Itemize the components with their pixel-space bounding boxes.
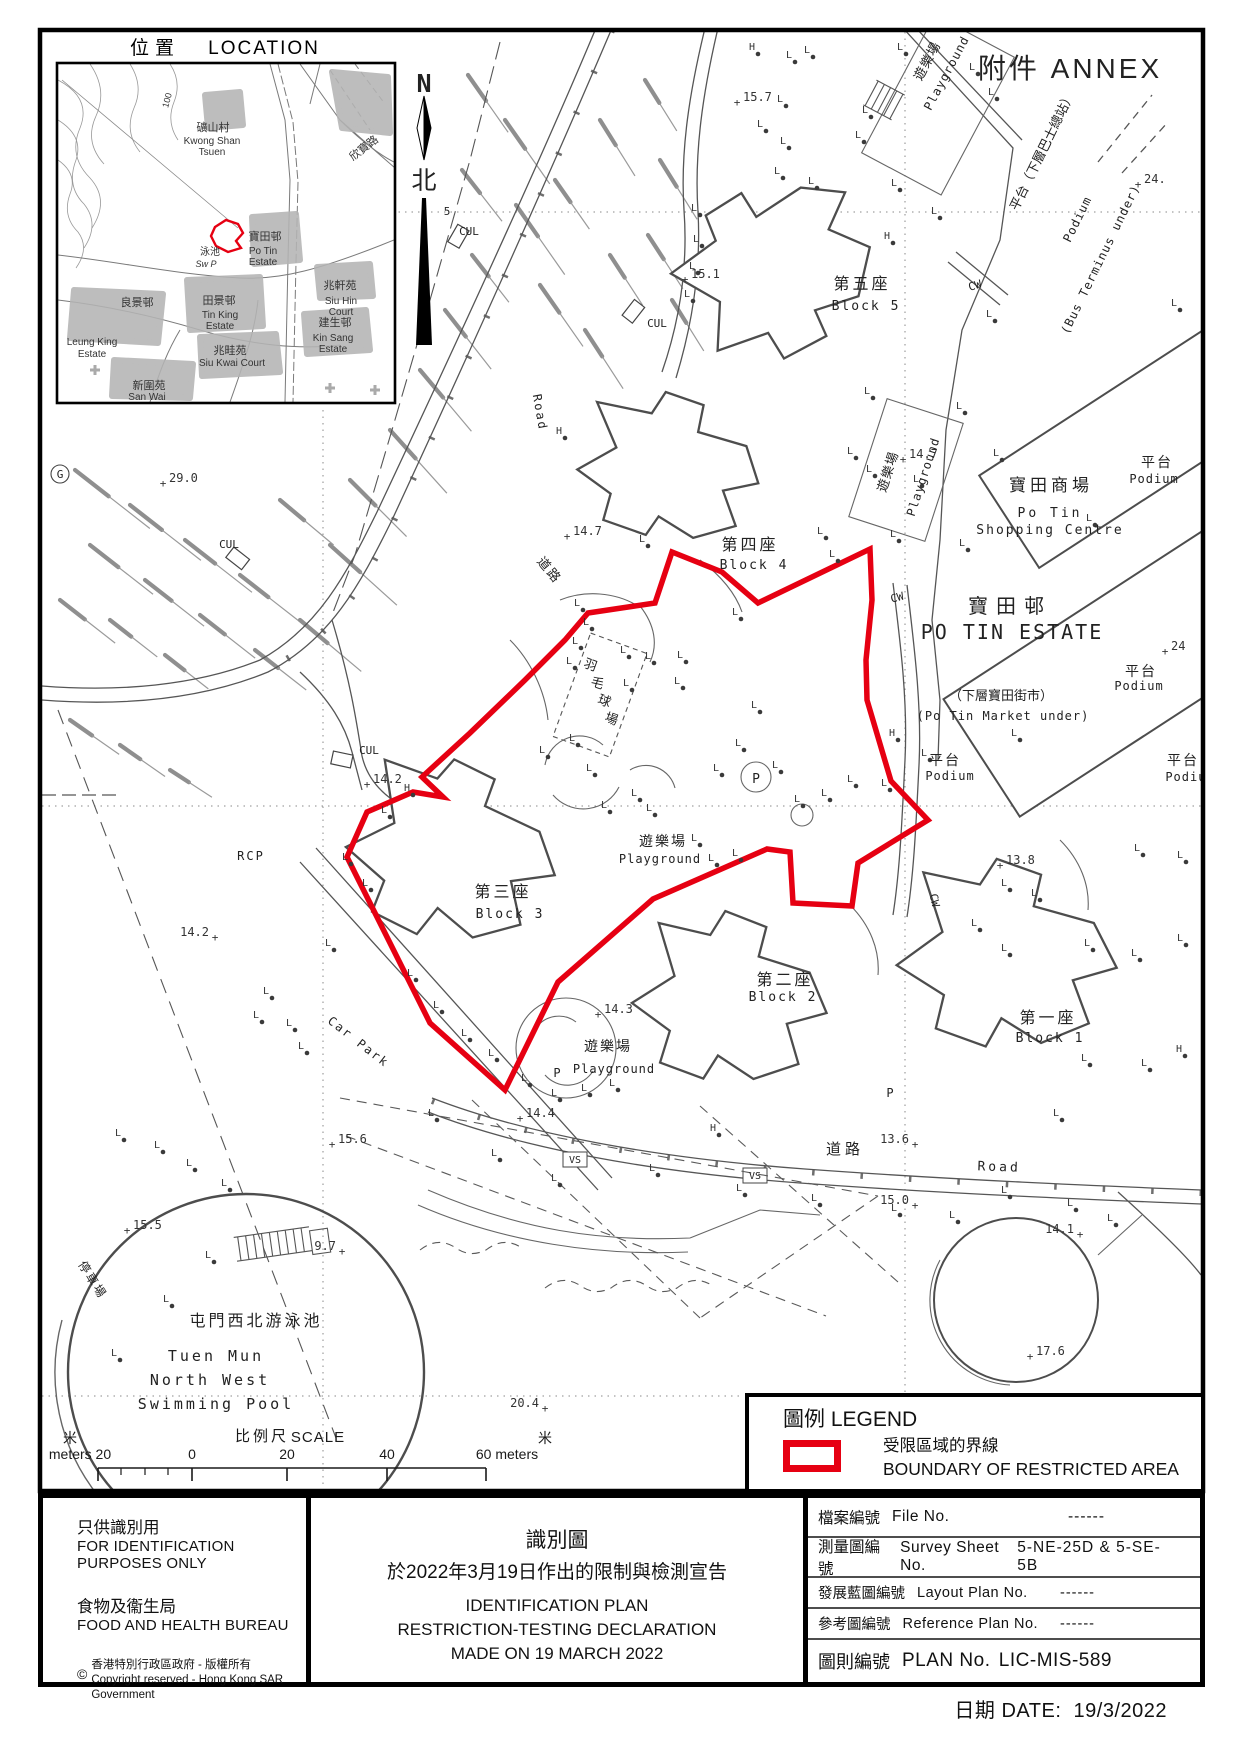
- slope-streak: [170, 770, 212, 797]
- lamp-post-dot: [579, 646, 584, 651]
- slope-streak: [585, 330, 623, 389]
- lamp-post-symbol: L: [1001, 1185, 1007, 1196]
- spot-height-value: 14.4: [526, 1106, 555, 1120]
- map-label: Block 1: [1016, 1031, 1085, 1046]
- lamp-post-symbol: L: [342, 852, 348, 863]
- map-label: SCALE: [291, 1429, 345, 1446]
- map-label: Podium: [1114, 679, 1163, 693]
- map-label: Kin Sang: [313, 333, 354, 344]
- map-label: Swimming Pool: [138, 1395, 294, 1413]
- lamp-post-dot: [700, 244, 705, 249]
- lamp-post-symbol: L: [1081, 1053, 1087, 1064]
- map-label: Tin King: [202, 310, 238, 321]
- lamp-post-symbol: L: [1001, 878, 1007, 889]
- lamp-post-dot: [369, 888, 374, 893]
- lamp-post-dot: [1018, 738, 1023, 743]
- map-label: Playground: [573, 1062, 655, 1076]
- map-label: Block 4: [720, 558, 789, 573]
- plan-line3-en: MADE ON 19 MARCH 2022: [311, 1642, 803, 1666]
- lamp-post-symbol: L: [1177, 850, 1183, 861]
- lamp-post-dot: [495, 1058, 500, 1063]
- table-row: 圖則編號 PLAN No. LIC-MIS-589: [808, 1640, 1200, 1682]
- slope-streak: [645, 80, 677, 131]
- map-label: Block 3: [476, 907, 545, 922]
- spot-height-cross: +: [542, 1402, 549, 1415]
- lamp-post-dot: [1184, 860, 1189, 865]
- lamp-post-dot: [787, 146, 792, 151]
- table-row: 參考圖編號 Reference Plan No. ------: [808, 1609, 1200, 1640]
- spot-height-value: 24: [1171, 639, 1185, 653]
- map-label: Road: [530, 393, 550, 432]
- spot-height-value: 15.5: [133, 1218, 162, 1232]
- scale-bar: [98, 1468, 486, 1481]
- h-marker-dot: [411, 793, 416, 798]
- spot-height-value: 20.4: [510, 1396, 539, 1410]
- lamp-post-dot: [558, 1098, 563, 1103]
- map-label: PO TIN ESTATE: [921, 620, 1104, 644]
- spot-height-cross: +: [682, 273, 689, 286]
- spot-height-value: 17.6: [1036, 1344, 1065, 1358]
- lamp-post-dot: [212, 1260, 217, 1265]
- lamp-post-dot: [742, 748, 747, 753]
- lamp-post-dot: [260, 1020, 265, 1025]
- lamp-post-symbol: L: [866, 464, 872, 475]
- map-label: Shopping Centre: [976, 523, 1123, 538]
- h-marker-symbol: H: [889, 728, 895, 739]
- lamp-post-dot: [720, 773, 725, 778]
- h-marker-symbol: H: [884, 231, 890, 242]
- spot-height-cross: +: [517, 1112, 524, 1125]
- lamp-post-dot: [440, 1010, 445, 1015]
- h-marker-symbol: H: [749, 42, 755, 53]
- lamp-post-dot: [897, 539, 902, 544]
- map-label: 良景邨: [121, 295, 154, 309]
- lamp-post-dot: [118, 1358, 123, 1363]
- lamp-post-dot: [715, 863, 720, 868]
- lamp-post-dot: [349, 862, 354, 867]
- map-label: 第五座: [833, 275, 890, 293]
- lamp-post-symbol: L: [855, 130, 861, 141]
- lamp-post-symbol: L: [407, 968, 413, 979]
- lamp-post-symbol: L: [794, 794, 800, 805]
- lamp-post-dot: [528, 1083, 533, 1088]
- map-label: CW: [889, 590, 906, 606]
- lamp-post-symbol: L: [808, 176, 814, 187]
- lamp-post-dot: [873, 474, 878, 479]
- lamp-post-dot: [1038, 898, 1043, 903]
- lamp-post-symbol: L: [757, 119, 763, 130]
- lamp-post-dot: [588, 1093, 593, 1098]
- lamp-post-dot: [653, 813, 658, 818]
- map-label: 道路: [826, 1141, 864, 1158]
- table-row: 檔案編號 File No. ------: [808, 1498, 1200, 1538]
- lamp-post-symbol: L: [969, 62, 975, 73]
- map-label: 遊樂場: [639, 833, 687, 849]
- map-label: Block 5: [832, 299, 901, 314]
- block-1-footprint: [871, 833, 1139, 1082]
- spot-height-cross: +: [364, 778, 371, 791]
- h-marker-dot: [1183, 1054, 1188, 1059]
- slope-streak: [555, 180, 589, 229]
- lamp-post-symbol: L: [566, 656, 572, 667]
- map-label: Podium: [1129, 472, 1178, 486]
- spot-height-value: 14.7: [573, 524, 602, 538]
- lamp-post-symbol: L: [325, 938, 331, 949]
- h-marker-symbol: H: [710, 1123, 716, 1134]
- lamp-post-symbol: L: [286, 1018, 292, 1029]
- lamp-post-symbol: L: [569, 733, 575, 744]
- lamp-post-dot: [966, 548, 971, 553]
- identification-note-block: 只供識別用 FOR IDENTIFICATION PURPOSES ONLY 食…: [43, 1498, 311, 1682]
- lamp-post-symbol: L: [693, 234, 699, 245]
- lamp-post-dot: [193, 1168, 198, 1173]
- lamp-post-symbol: L: [1031, 888, 1037, 899]
- slope-streak: [672, 300, 704, 351]
- spot-height-value: 15.6: [338, 1132, 367, 1146]
- spot-height-value: 13.6: [880, 1132, 909, 1146]
- lamp-post-dot: [1091, 948, 1096, 953]
- table-row: 發展藍圖編號 Layout Plan No. ------: [808, 1578, 1200, 1609]
- map-label: 建生邨: [319, 315, 352, 329]
- map-label: P: [553, 1066, 560, 1080]
- map-label: 礦山村: [197, 120, 230, 134]
- slope-streak: [648, 235, 683, 289]
- lamp-post-symbol: L: [1084, 938, 1090, 949]
- north-letter: N: [416, 69, 431, 98]
- map-label: 米: [63, 1430, 77, 1446]
- lamp-post-dot: [593, 773, 598, 778]
- restricted-boundary-swatch: [783, 1440, 841, 1472]
- lamp-post-dot: [122, 1138, 127, 1143]
- map-label: Sw P: [195, 259, 216, 269]
- map-label: 新圍苑: [133, 378, 166, 392]
- map-label: 0: [188, 1446, 196, 1462]
- spot-height-cross: +: [1162, 645, 1169, 658]
- map-label: 寶田邨: [968, 595, 1052, 618]
- map-label: Estate: [319, 344, 348, 355]
- map-label: CW: [967, 277, 984, 294]
- map-label: 40: [379, 1446, 395, 1462]
- slope-streak: [600, 120, 635, 176]
- slope-streak: [70, 720, 119, 754]
- spot-height-cross: +: [997, 859, 1004, 872]
- slope-streak: [110, 620, 157, 657]
- lamp-post-symbol: L: [772, 760, 778, 771]
- lamp-post-dot: [681, 686, 686, 691]
- map-label: 20: [279, 1446, 295, 1462]
- lamp-post-symbol: L: [572, 636, 578, 647]
- lamp-post-dot: [638, 798, 643, 803]
- lamp-post-symbol: L: [1053, 1108, 1059, 1119]
- plan-line2-en: RESTRICTION-TESTING DECLARATION: [311, 1618, 803, 1642]
- lamp-post-dot: [1000, 458, 1005, 463]
- copyright-icon: ©: [77, 1666, 87, 1682]
- lamp-post-symbol: L: [708, 853, 714, 864]
- lamp-post-symbol: L: [186, 1158, 192, 1169]
- lamp-post-symbol: L: [461, 1028, 467, 1039]
- lamp-post-dot: [581, 608, 586, 613]
- map-label: 寶田邨: [249, 229, 282, 243]
- identification-plan-page: LLLLLLLLLLLLLLLLLLLLLLLLLLLLLLLLLLLLLLLL…: [0, 0, 1241, 1754]
- lamp-post-symbol: L: [154, 1140, 160, 1151]
- slope-streak: [610, 255, 643, 305]
- lamp-post-symbol: L: [862, 105, 868, 116]
- map-label: 平台: [1125, 663, 1157, 679]
- lamp-post-dot: [1008, 888, 1013, 893]
- lamp-post-dot: [793, 60, 798, 65]
- location-inset-map: 礦山村Kwong ShanTsuen欣寶路100寶田邨Po TinEstate泳…: [43, 37, 395, 403]
- lamp-post-symbol: L: [713, 763, 719, 774]
- lamp-post-symbol: L: [956, 401, 962, 412]
- map-label: Podium: [1060, 194, 1094, 245]
- lamp-post-symbol: L: [993, 448, 999, 459]
- map-label: Playground: [619, 852, 701, 866]
- lamp-post-symbol: L: [774, 166, 780, 177]
- spot-height-cross: +: [912, 1138, 919, 1151]
- lamp-post-symbol: L: [988, 87, 994, 98]
- lamp-post-dot: [332, 948, 337, 953]
- note-zh: 只供識別用: [77, 1514, 306, 1538]
- lamp-post-dot: [228, 1188, 233, 1193]
- legend-item-label: 受限區域的界線 BOUNDARY OF RESTRICTED AREA: [883, 1436, 1179, 1482]
- map-label: Podium: [925, 769, 974, 783]
- lamp-post-dot: [435, 1118, 440, 1123]
- lamp-post-dot: [388, 815, 393, 820]
- map-label: G: [57, 468, 64, 481]
- map-label: meters 20: [49, 1446, 111, 1462]
- map-label: 第二座: [756, 971, 813, 989]
- map-label: 米: [538, 1430, 552, 1446]
- map-label: CUL: [459, 225, 479, 238]
- map-label: Tsuen: [199, 147, 226, 158]
- map-label: Car Park: [325, 1014, 392, 1070]
- lamp-post-dot: [956, 1220, 961, 1225]
- legend-box: 圖例 LEGEND 受限區域的界線 BOUNDARY OF RESTRICTED…: [745, 1393, 1205, 1493]
- lamp-post-symbol: L: [847, 774, 853, 785]
- lamp-post-dot: [1178, 308, 1183, 313]
- lamp-post-dot: [811, 55, 816, 60]
- lamp-post-symbol: L: [732, 607, 738, 618]
- lamp-post-symbol: L: [691, 833, 697, 844]
- lamp-post-dot: [869, 115, 874, 120]
- scale-bar-labels: 米meters 20比例尺SCALE0204060 meters米: [49, 1428, 552, 1462]
- lamp-post-dot: [414, 978, 419, 983]
- north-arrow: [416, 96, 432, 345]
- spot-height-value: 13.8: [1006, 853, 1035, 867]
- map-label: CUL: [219, 538, 239, 551]
- lamp-post-symbol: L: [263, 986, 269, 997]
- map-label: Estate: [249, 257, 278, 268]
- lamp-post-symbol: L: [1134, 843, 1140, 854]
- map-label: Siu Hin: [325, 296, 357, 307]
- map-label: Estate: [78, 349, 107, 360]
- slope-streak: [468, 75, 508, 132]
- spot-height-cross: +: [912, 1199, 919, 1212]
- lamp-post-dot: [904, 52, 909, 57]
- map-label: 場: [603, 709, 620, 728]
- map-label: 遊樂場: [874, 449, 901, 494]
- lamp-post-symbol: L: [921, 748, 927, 759]
- lamp-post-dot: [1008, 1195, 1013, 1200]
- date-line: 日期 DATE: 19/3/2022: [954, 1694, 1167, 1723]
- lamp-post-symbol: L: [777, 94, 783, 105]
- lamp-post-dot: [815, 186, 820, 191]
- lamp-post-dot: [828, 798, 833, 803]
- lamp-post-dot: [630, 688, 635, 693]
- lamp-post-dot: [779, 770, 784, 775]
- map-label: 60 meters: [476, 1446, 538, 1462]
- map-label: 兆軒苑: [324, 279, 357, 292]
- lamp-post-symbol: L: [1131, 948, 1137, 959]
- map-label: 5: [444, 205, 451, 218]
- lamp-post-symbol: L: [1141, 1058, 1147, 1069]
- h-marker-dot: [717, 1133, 722, 1138]
- slope-streak: [420, 370, 471, 431]
- lamp-post-symbol: L: [581, 1083, 587, 1094]
- lamp-post-symbol: L: [786, 50, 792, 61]
- lamp-post-dot: [652, 661, 657, 666]
- map-label: Road: [977, 1159, 1021, 1176]
- map-label: 兆畦苑: [214, 344, 247, 357]
- lamp-post-dot: [627, 655, 632, 660]
- h-marker-dot: [896, 738, 901, 743]
- north-char: 北: [411, 167, 436, 195]
- spot-height-value: 14.2: [373, 772, 402, 786]
- copyright-note: © 香港特別行政區政府 - 版權所有 Copyright reserved - …: [77, 1658, 306, 1703]
- map-label: CUL: [359, 744, 379, 757]
- spot-height-value: 29.0: [169, 471, 198, 485]
- map-label: Kwong Shan: [184, 136, 241, 147]
- slope-streak: [75, 470, 150, 528]
- map-label: 第一座: [1019, 1009, 1076, 1027]
- map-label: Po Tin: [249, 246, 277, 257]
- lamp-post-symbol: L: [115, 1128, 121, 1139]
- slope-streak: [145, 580, 204, 626]
- lamp-post-symbol: L: [491, 1148, 497, 1159]
- map-label: 第四座: [721, 536, 778, 554]
- map-label: 平台: [1167, 752, 1199, 768]
- spot-height-value: 15.0: [880, 1193, 909, 1207]
- h-marker-dot: [756, 52, 761, 57]
- lamp-post-symbol: L: [521, 1073, 527, 1084]
- lamp-post-dot: [898, 1213, 903, 1218]
- lamp-post-symbol: L: [539, 745, 545, 756]
- lamp-post-dot: [1138, 958, 1143, 963]
- lamp-post-dot: [698, 843, 703, 848]
- lamp-post-symbol: L: [362, 878, 368, 889]
- lamp-post-symbol: L: [677, 650, 683, 661]
- lamp-post-dot: [824, 536, 829, 541]
- map-label: 毛: [589, 673, 606, 692]
- lamp-post-symbol: L: [691, 203, 697, 214]
- map-label: (Po Tin Market under): [917, 709, 1090, 723]
- lamp-post-dot: [862, 140, 867, 145]
- lamp-post-dot: [781, 176, 786, 181]
- lamp-post-symbol: L: [751, 700, 757, 711]
- h-marker-dot: [563, 436, 568, 441]
- lamp-post-symbol: L: [971, 918, 977, 929]
- lamp-post-symbol: L: [163, 1294, 169, 1305]
- lamp-post-dot: [558, 1183, 563, 1188]
- lamp-post-dot: [995, 97, 1000, 102]
- map-label: (Bus Terminus under): [1058, 182, 1143, 336]
- lamp-post-symbol: L: [381, 805, 387, 816]
- spot-height-cross: +: [160, 477, 167, 490]
- lamp-post-symbol: L: [583, 617, 589, 628]
- title-block-section: 只供識別用 FOR IDENTIFICATION PURPOSES ONLY 食…: [38, 1493, 1205, 1687]
- map-label: 比例尺: [235, 1428, 289, 1445]
- lamp-post-symbol: L: [864, 386, 870, 397]
- lamp-post-dot: [684, 660, 689, 665]
- spot-height-value: 14.1: [1045, 1222, 1074, 1236]
- lamp-post-dot: [1141, 853, 1146, 858]
- lamp-post-symbol: L: [847, 446, 853, 457]
- slope-streak: [280, 500, 334, 545]
- slope-streak: [60, 600, 115, 643]
- lamp-post-symbol: L: [639, 534, 645, 545]
- slope-streak: [540, 285, 583, 346]
- map-label: （下層寶田街市）: [949, 688, 1053, 703]
- lamp-post-dot: [161, 1150, 166, 1155]
- h-marker-symbol: H: [404, 783, 410, 794]
- h-marker-symbol: H: [1176, 1044, 1182, 1055]
- plan-title-en: IDENTIFICATION PLAN: [311, 1594, 803, 1618]
- lamp-post-symbol: L: [732, 848, 738, 859]
- map-label: 平台: [929, 752, 961, 768]
- slope-streak: [255, 650, 306, 690]
- lamp-post-dot: [801, 804, 806, 809]
- h-marker-symbol: H: [556, 426, 562, 437]
- lamp-post-symbol: L: [1011, 728, 1017, 739]
- lamp-post-symbol: L: [897, 42, 903, 53]
- map-label: Podium: [1165, 770, 1214, 784]
- lamp-post-dot: [818, 1203, 823, 1208]
- slope-streak: [120, 745, 165, 777]
- spot-height-cross: +: [124, 1224, 131, 1237]
- lamp-post-dot: [963, 411, 968, 416]
- map-label: North West: [150, 1371, 270, 1389]
- lamp-post-dot: [170, 1304, 175, 1309]
- slope-streak: [516, 205, 565, 275]
- slope-streak: [90, 545, 153, 594]
- spot-height-cross: +: [734, 96, 741, 109]
- lamp-post-symbol: L: [574, 598, 580, 609]
- lamp-post-symbol: L: [949, 1210, 955, 1221]
- map-label: Tuen Mun: [168, 1347, 264, 1365]
- lamp-post-symbol: L: [428, 1108, 434, 1119]
- lamp-post-symbol: L: [205, 1250, 211, 1261]
- lamp-post-symbol: L: [551, 1173, 557, 1184]
- lamp-post-dot: [590, 627, 595, 632]
- lamp-post-symbol: L: [959, 538, 965, 549]
- lamp-post-dot: [758, 710, 763, 715]
- lamp-post-dot: [546, 755, 551, 760]
- spot-height-cross: +: [595, 1008, 602, 1021]
- lamp-post-dot: [1148, 1068, 1153, 1073]
- spot-height-value: 15.7: [743, 90, 772, 104]
- lamp-post-dot: [698, 213, 703, 218]
- lamp-post-symbol: L: [804, 45, 810, 56]
- spot-height-cross: +: [329, 1138, 336, 1151]
- spot-height-cross: +: [564, 530, 571, 543]
- lamp-post-symbol: L: [623, 678, 629, 689]
- slope-streak: [462, 170, 502, 221]
- slope-streak: [300, 620, 361, 671]
- lamp-post-dot: [1008, 953, 1013, 958]
- lamp-post-symbol: L: [1171, 298, 1177, 309]
- spot-height-value: 15.1: [691, 267, 720, 281]
- lamp-post-symbol: L: [601, 800, 607, 811]
